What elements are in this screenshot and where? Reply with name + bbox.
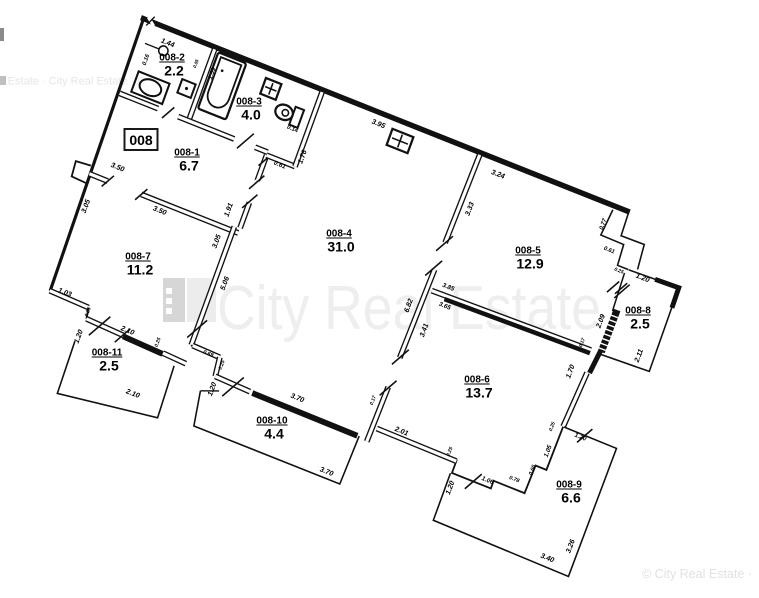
svg-text:13.7: 13.7: [465, 385, 492, 401]
svg-text:4.0: 4.0: [241, 107, 261, 123]
svg-text:4.4: 4.4: [264, 426, 284, 442]
svg-text:31.0: 31.0: [327, 239, 354, 255]
svg-text:11.2: 11.2: [127, 262, 154, 278]
svg-text:2.5: 2.5: [99, 358, 119, 374]
svg-text:© City Real Estate ·: © City Real Estate ·: [642, 567, 752, 581]
svg-text:6.6: 6.6: [561, 490, 581, 506]
svg-text:008: 008: [129, 132, 153, 148]
svg-text:2.2: 2.2: [164, 63, 184, 79]
svg-text:2.5: 2.5: [630, 316, 650, 332]
svg-text:6.7: 6.7: [179, 158, 199, 174]
svg-text:12.9: 12.9: [516, 256, 543, 272]
